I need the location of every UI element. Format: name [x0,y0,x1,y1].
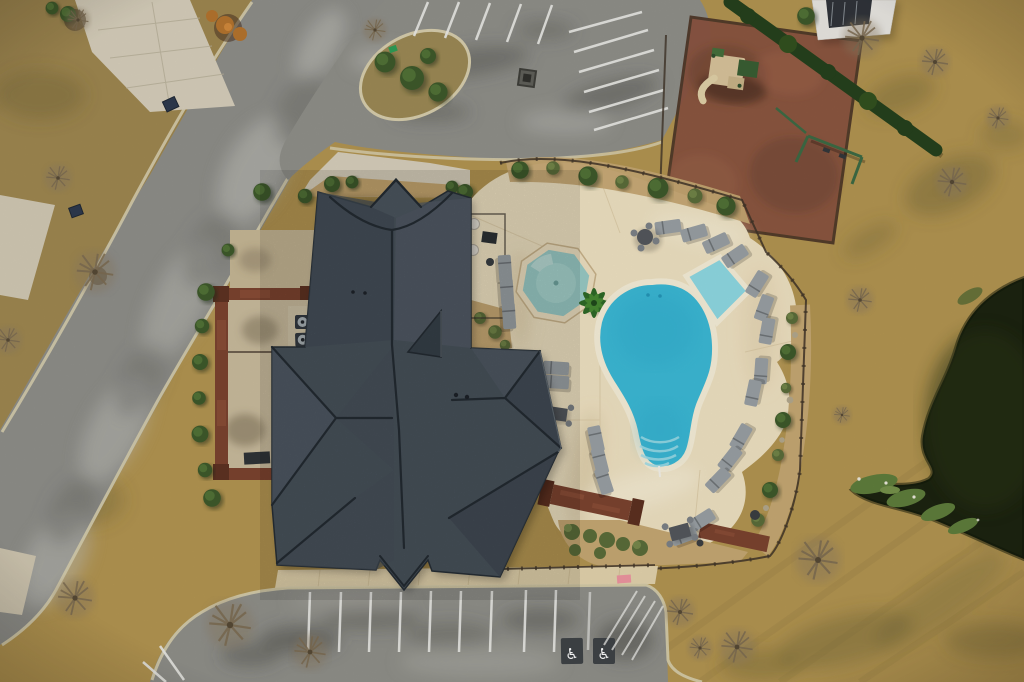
aerial-photo: ♿ ♿ [0,0,1024,682]
vignette [0,0,1024,682]
